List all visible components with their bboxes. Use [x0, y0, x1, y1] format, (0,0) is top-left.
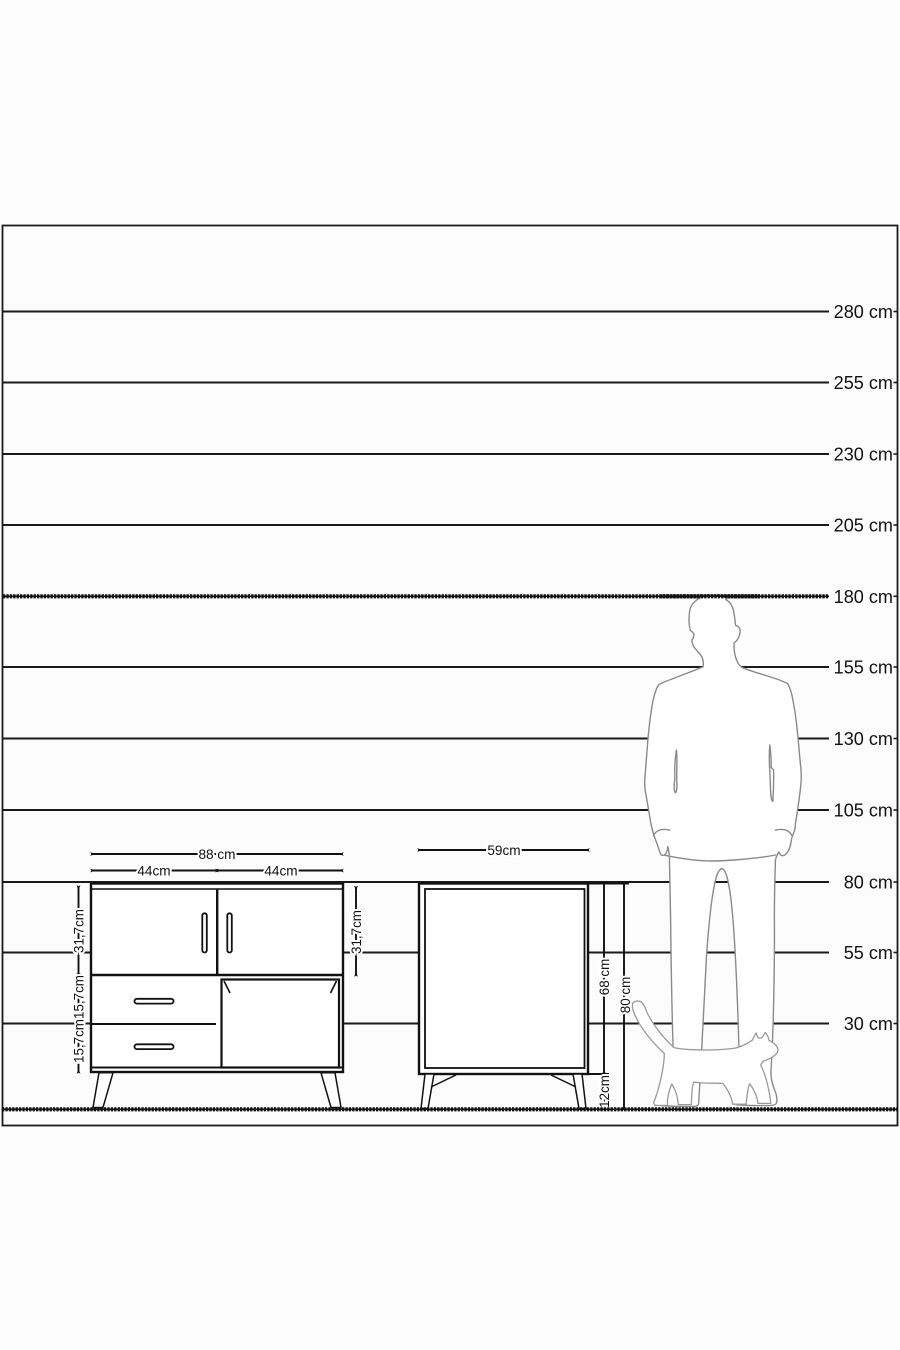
svg-text:31,7cm: 31,7cm — [71, 909, 86, 953]
svg-text:230 cm: 230 cm — [834, 445, 893, 465]
svg-text:68 cm: 68 cm — [597, 959, 612, 995]
svg-text:44cm: 44cm — [137, 863, 170, 878]
svg-text:105 cm: 105 cm — [834, 801, 893, 821]
svg-text:205 cm: 205 cm — [834, 516, 893, 536]
svg-text:55 cm: 55 cm — [844, 943, 893, 963]
svg-text:255 cm: 255 cm — [834, 373, 893, 393]
svg-text:59cm: 59cm — [487, 843, 520, 858]
svg-text:15,7cm: 15,7cm — [71, 975, 86, 1019]
svg-text:44cm: 44cm — [264, 863, 297, 878]
svg-text:180 cm: 180 cm — [834, 587, 893, 607]
svg-text:280 cm: 280 cm — [834, 302, 893, 322]
svg-text:31,7cm: 31,7cm — [349, 910, 364, 954]
svg-text:15,7cm: 15,7cm — [71, 1019, 86, 1063]
svg-text:130 cm: 130 cm — [834, 729, 893, 749]
svg-text:80 cm: 80 cm — [618, 977, 633, 1013]
svg-text:30 cm: 30 cm — [844, 1014, 893, 1034]
svg-text:88 cm: 88 cm — [198, 847, 235, 862]
svg-text:80 cm: 80 cm — [844, 873, 893, 893]
svg-text:12cm: 12cm — [597, 1075, 612, 1108]
svg-text:155 cm: 155 cm — [834, 658, 893, 678]
